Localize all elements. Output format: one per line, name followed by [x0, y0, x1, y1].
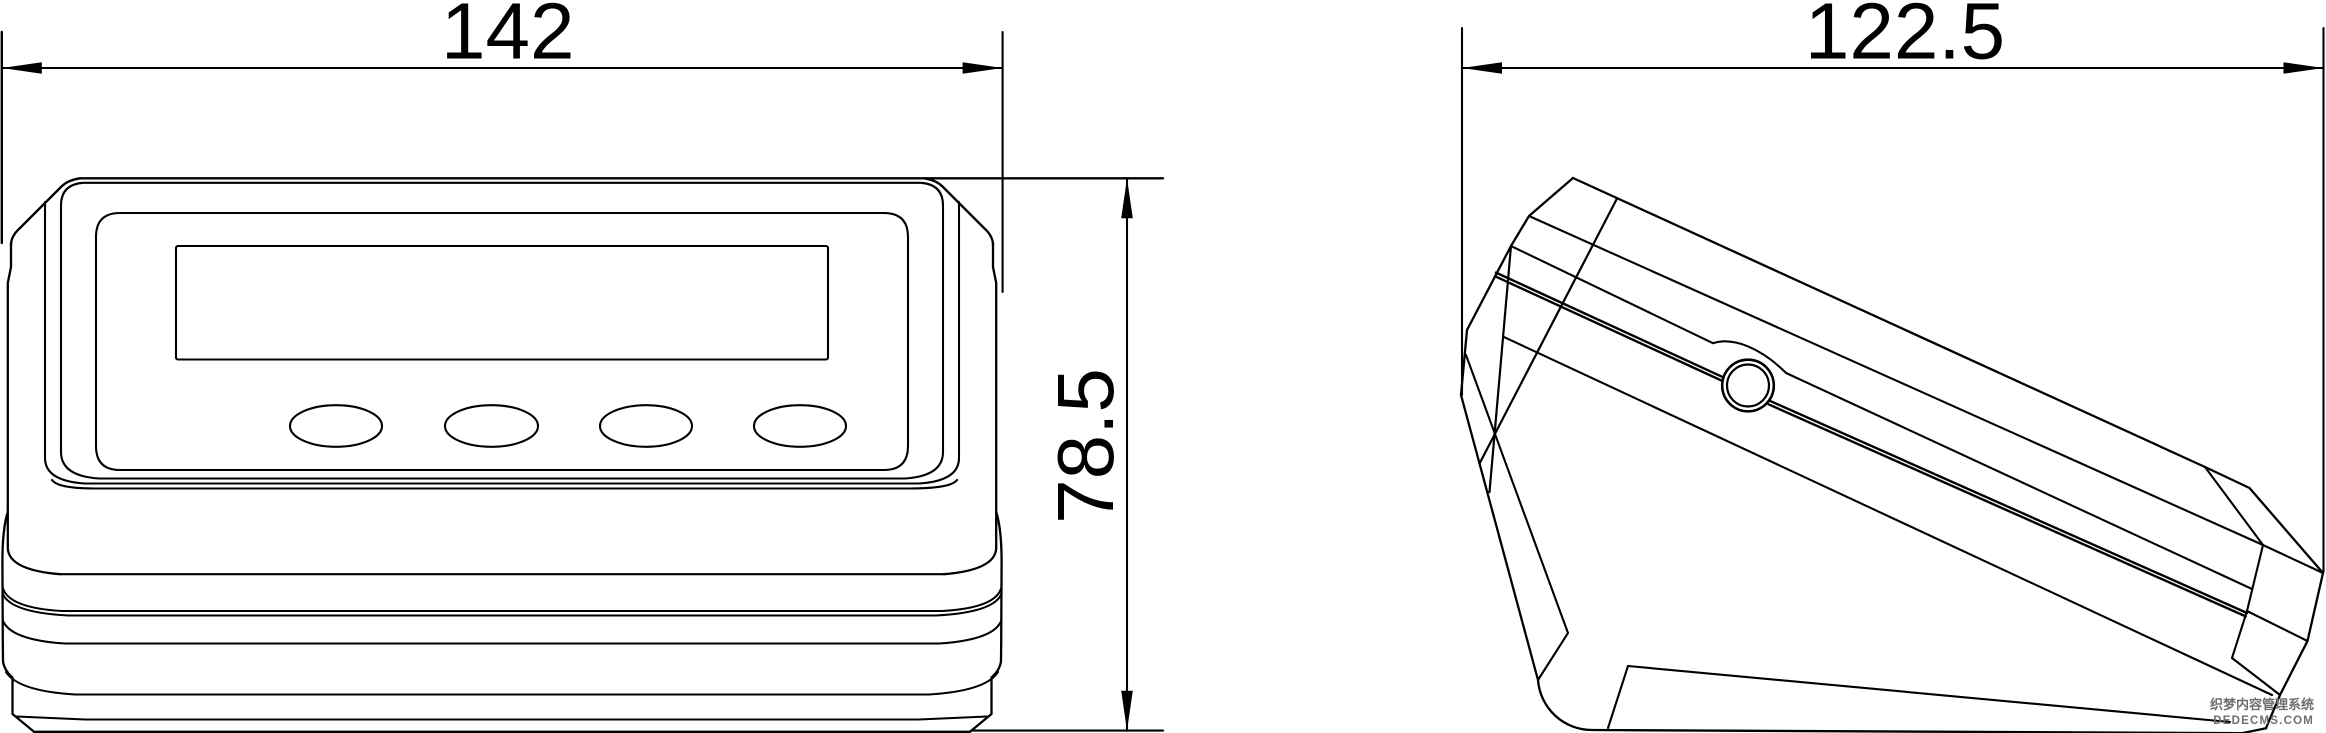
svg-text:142: 142 — [441, 0, 574, 76]
svg-text:织梦内容管理系统: 织梦内容管理系统 — [2210, 697, 2314, 712]
svg-text:DEDECMS.COM: DEDECMS.COM — [2213, 715, 2314, 727]
svg-text:78.5: 78.5 — [1041, 368, 1130, 524]
svg-text:122.5: 122.5 — [1805, 0, 2005, 76]
